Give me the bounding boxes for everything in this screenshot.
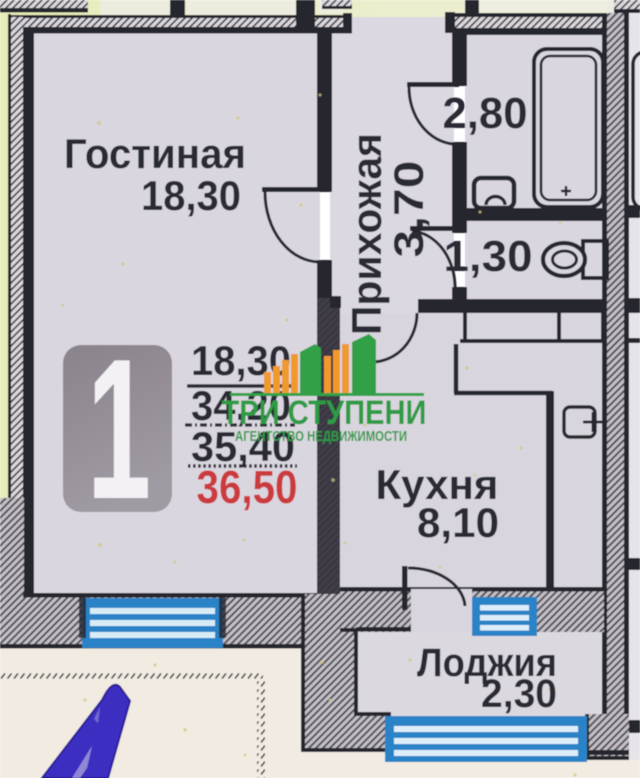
svg-text:2,80: 2,80 [443,89,528,138]
svg-text:АГЕНТСТВО НЕДВИЖИМОСТИ: АГЕНТСТВО НЕДВИЖИМОСТИ [235,429,407,445]
svg-text:Прихожая: Прихожая [343,133,390,335]
svg-text:8,10: 8,10 [417,499,499,546]
svg-text:ТРИ СТУПЕНИ: ТРИ СТУПЕНИ [222,394,427,432]
svg-text:1,30: 1,30 [444,232,533,281]
svg-text:3,70: 3,70 [385,161,432,258]
svg-text:1: 1 [87,318,151,541]
svg-text:18,30: 18,30 [141,172,241,219]
svg-text:Гостиная: Гостиная [64,130,246,177]
svg-text:2,30: 2,30 [481,672,557,716]
svg-text:36,50: 36,50 [197,461,298,513]
